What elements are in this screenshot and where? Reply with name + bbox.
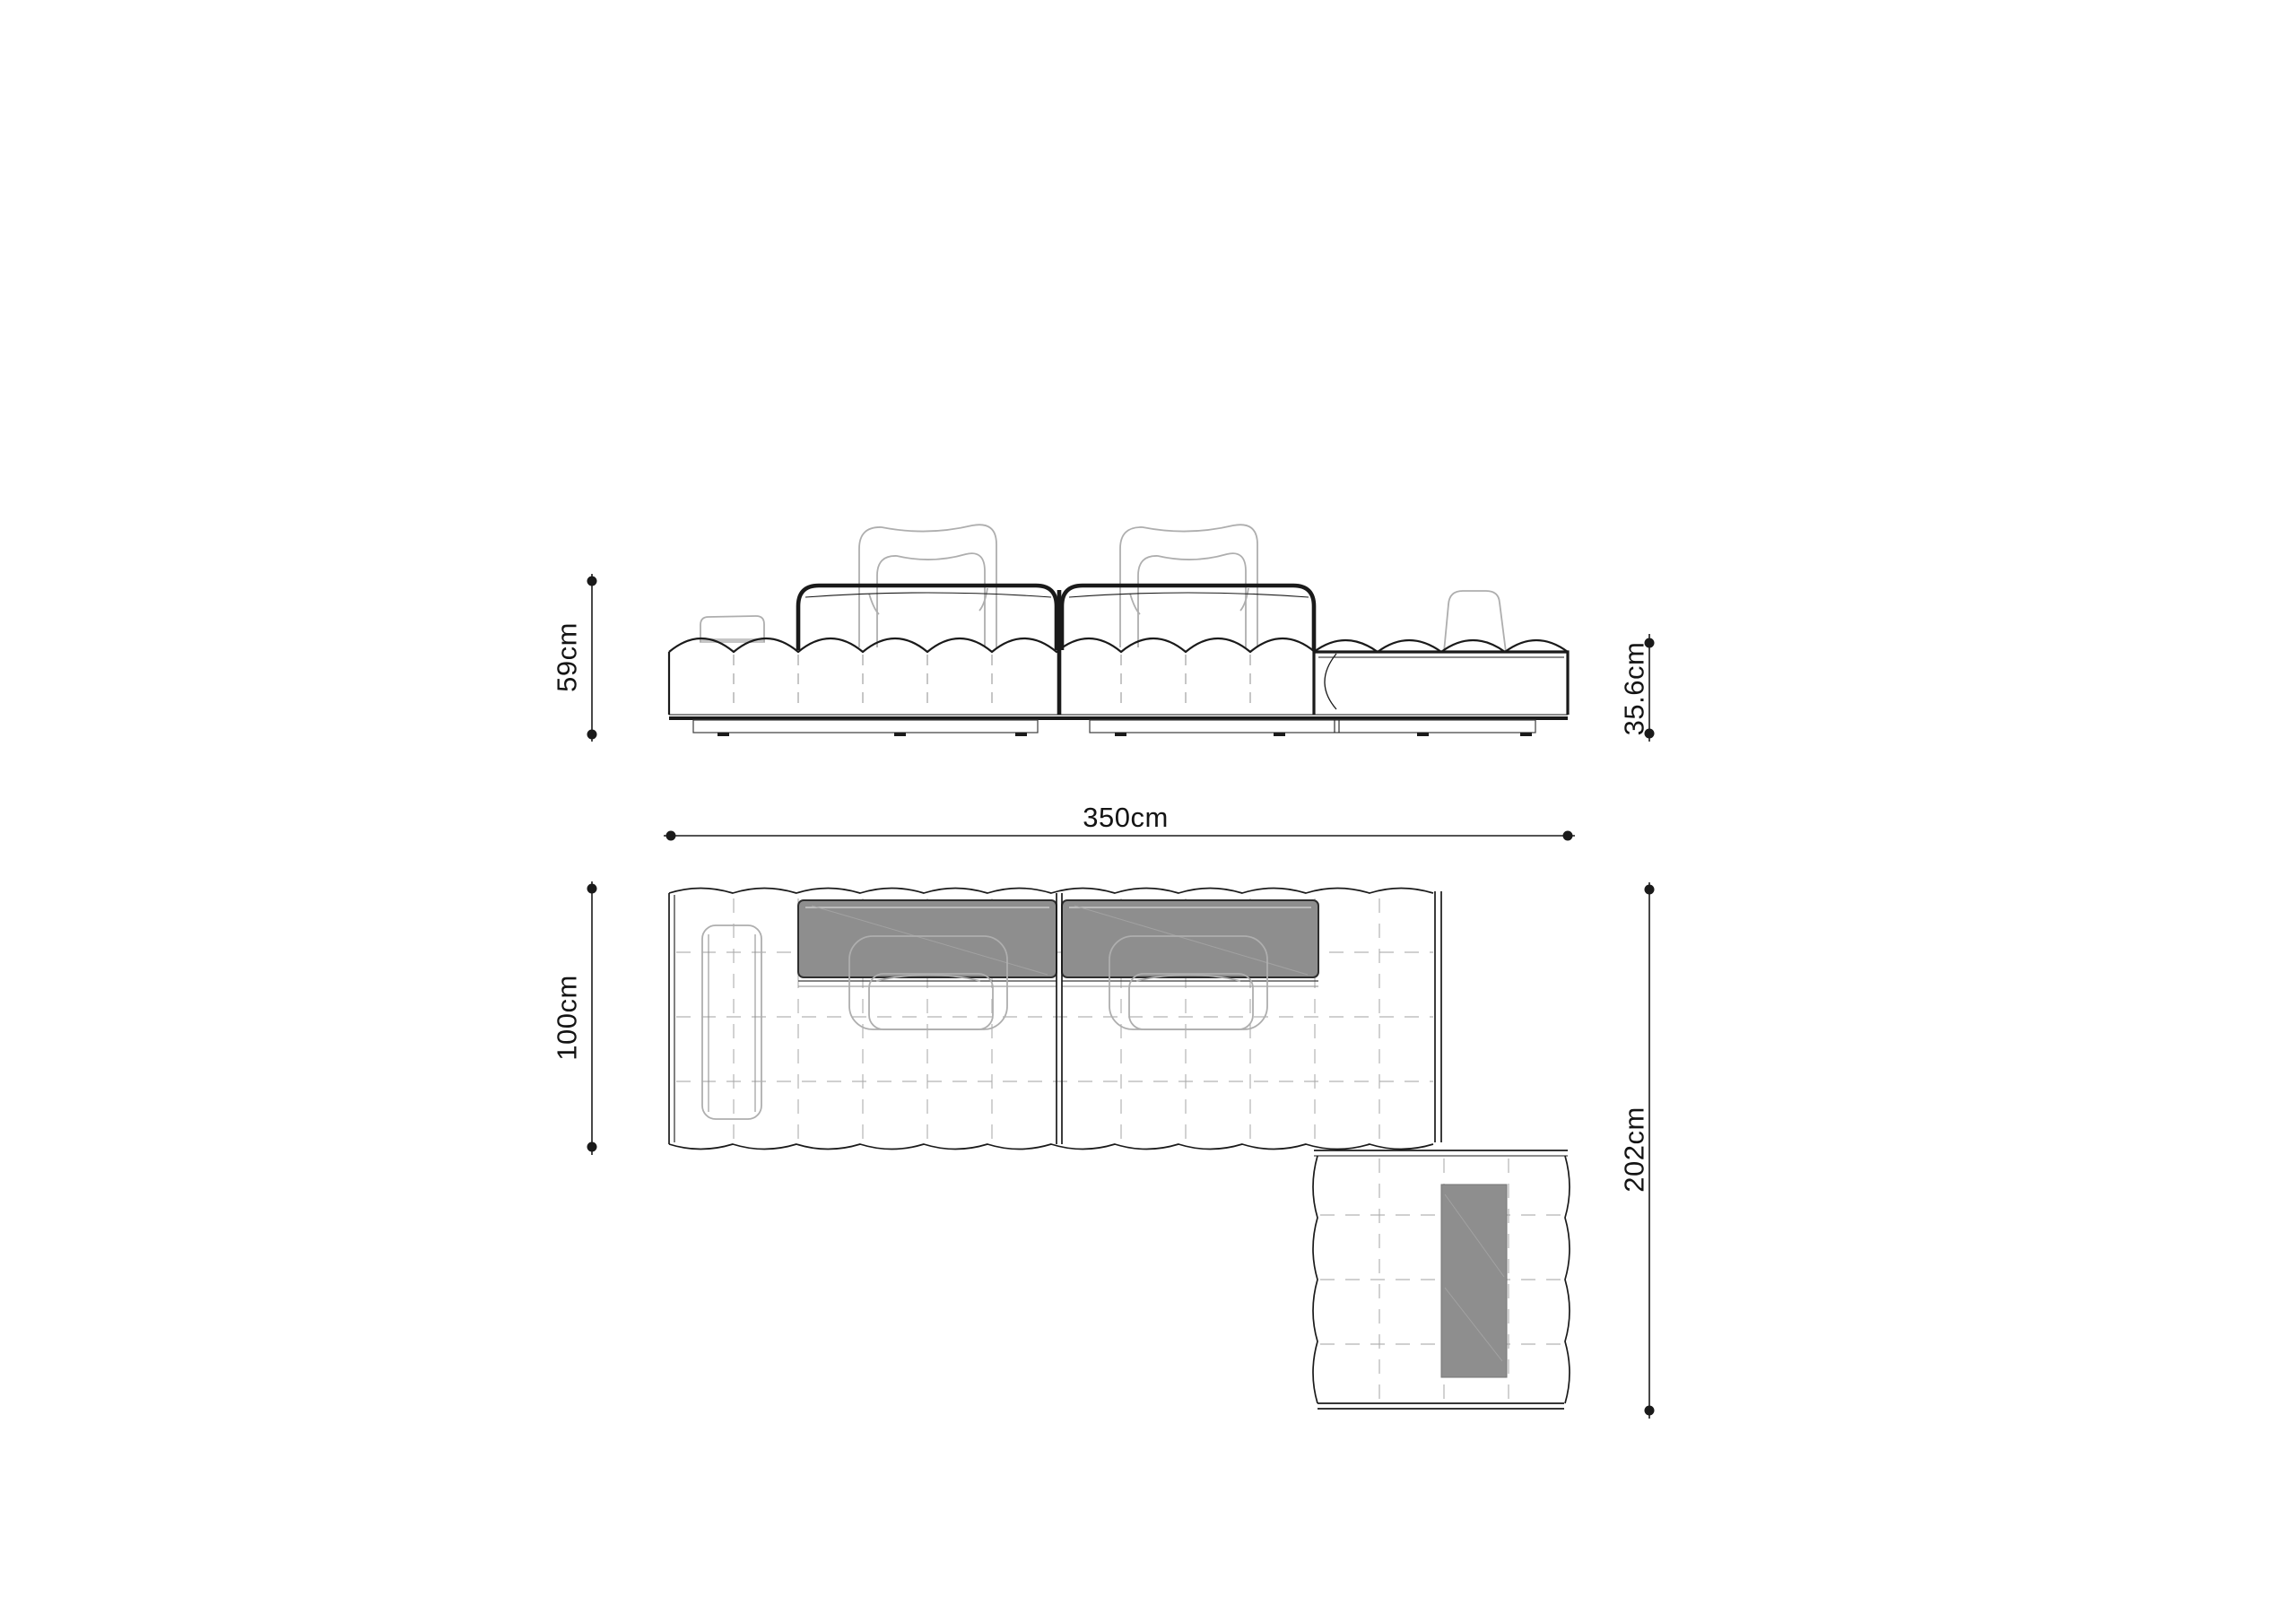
chaise-plan	[1313, 1150, 1570, 1409]
foot	[894, 733, 906, 736]
dim-overall-width: 350cm	[664, 802, 1575, 841]
front-elevation-view	[669, 525, 1568, 736]
foot	[1274, 733, 1285, 736]
ghost-chaise-pillow	[1444, 591, 1506, 652]
plinth-joint	[1335, 720, 1339, 733]
plan-view	[669, 889, 1570, 1410]
ghost-cushion-inner	[1138, 553, 1246, 647]
chaise-left-wavy-edge	[1313, 1156, 1318, 1403]
dim-dot	[1563, 831, 1573, 841]
plinth-right	[1090, 720, 1535, 733]
dim-chaise-height: 35.6cm	[1619, 634, 1655, 742]
plan-top-wavy-edge	[669, 889, 1433, 894]
ghost-cushion-inner	[877, 553, 985, 647]
dim-label-chaise-height: 35.6cm	[1619, 642, 1650, 736]
dim-dot	[1645, 885, 1655, 895]
ghost-cushion-fold	[979, 588, 987, 611]
dim-dot	[666, 831, 676, 841]
ghost-cushion-fold	[1240, 588, 1248, 611]
armrest-cushion-outline	[702, 925, 761, 1119]
headrest-inner	[869, 974, 993, 1029]
dim-dot	[587, 884, 597, 894]
headrest-inner	[1129, 974, 1253, 1029]
foot	[1417, 733, 1429, 736]
plan-bottom-wavy-edge	[669, 1144, 1433, 1150]
backrest-2-top-seam	[1069, 593, 1309, 597]
dim-dot	[587, 730, 597, 740]
chaise-grey-pillow	[1441, 1185, 1507, 1377]
dim-dot	[587, 1142, 597, 1152]
dim-label-front-height: 59cm	[552, 622, 583, 692]
dim-overall-depth: 202cm	[1619, 882, 1655, 1419]
chaise-elevation	[1314, 640, 1568, 715]
foot	[717, 733, 729, 736]
chaise-roll-arc	[1325, 654, 1336, 709]
dim-front-height: 59cm	[552, 574, 597, 742]
armrest-cushion-plan	[702, 925, 761, 1119]
backrest-1-top-seam	[805, 593, 1051, 597]
foot	[1520, 733, 1532, 736]
dim-seat-depth: 100cm	[552, 881, 597, 1155]
dim-dot	[1645, 1406, 1655, 1416]
plinth-left	[693, 720, 1038, 733]
elevation-tuft-lines	[734, 655, 1250, 711]
chaise-right-wavy-edge	[1565, 1156, 1570, 1403]
seat-scallop-edge	[669, 638, 1315, 652]
drawing-sheet: 59cm 350cm 35.6cm 100cm 202cm	[0, 0, 2296, 1623]
dim-label-seat-depth: 100cm	[552, 975, 583, 1061]
chaise-pillow-fill	[1441, 1185, 1507, 1377]
chaise-scallop-edge	[1314, 640, 1568, 652]
foot	[1015, 733, 1027, 736]
chaise-box	[1314, 652, 1568, 715]
dim-label-overall-width: 350cm	[1083, 802, 1169, 833]
base-plinth	[669, 715, 1568, 736]
dim-dot	[587, 577, 597, 586]
sofa-technical-drawing: 59cm 350cm 35.6cm 100cm 202cm	[0, 0, 2296, 1623]
dim-label-overall-depth: 202cm	[1619, 1107, 1650, 1193]
foot	[1115, 733, 1126, 736]
bench-pillow-outline	[700, 616, 764, 642]
band-fill	[1062, 900, 1318, 977]
